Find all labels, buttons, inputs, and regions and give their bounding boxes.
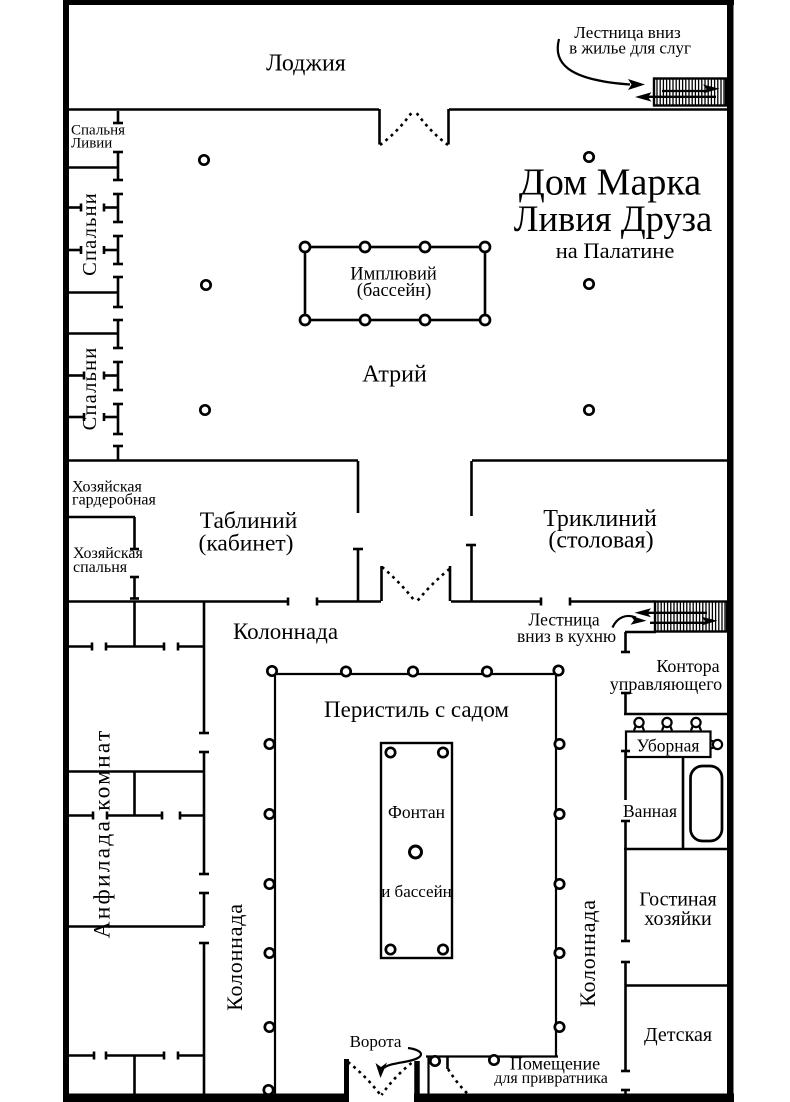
svg-text:Перистиль с садом: Перистиль с садом [324, 697, 509, 722]
svg-text:(бассейн): (бассейн) [357, 281, 432, 301]
svg-text:Фонтан: Фонтан [388, 802, 445, 822]
svg-text:гардеробная: гардеробная [72, 492, 157, 509]
svg-text:Уборная: Уборная [637, 736, 700, 756]
svg-text:Ворота: Ворота [350, 1032, 402, 1051]
svg-text:на Палатине: на Палатине [556, 238, 675, 263]
svg-text:вниз в кухню: вниз в кухню [517, 626, 616, 646]
svg-text:Атрий: Атрий [362, 362, 427, 388]
svg-text:(столовая): (столовая) [548, 528, 653, 554]
svg-text:Контора: Контора [656, 656, 719, 676]
svg-text:Спальни: Спальни [79, 347, 101, 431]
svg-text:для привратника: для привратника [494, 1070, 608, 1087]
svg-text:Ливии: Ливии [71, 136, 112, 152]
svg-text:Колоннада: Колоннада [222, 903, 247, 1011]
svg-text:Спальни: Спальни [79, 192, 101, 276]
svg-text:управляющего: управляющего [610, 674, 722, 694]
svg-text:Детская: Детская [644, 1024, 712, 1046]
svg-text:хозяйки: хозяйки [644, 908, 712, 930]
svg-text:Анфилада комнат: Анфилада комнат [90, 729, 116, 939]
svg-text:(кабинет): (кабинет) [199, 531, 294, 557]
svg-text:Ливия Друза: Ливия Друза [514, 198, 713, 239]
svg-text:Колоннада: Колоннада [233, 619, 338, 644]
svg-text:спальня: спальня [73, 559, 128, 576]
svg-text:Лоджия: Лоджия [266, 51, 346, 77]
svg-text:в жилье для слуг: в жилье для слуг [569, 39, 691, 58]
svg-text:Ванная: Ванная [623, 801, 677, 821]
svg-text:и бассейн: и бассейн [381, 882, 452, 901]
svg-text:Колоннада: Колоннада [575, 899, 600, 1007]
